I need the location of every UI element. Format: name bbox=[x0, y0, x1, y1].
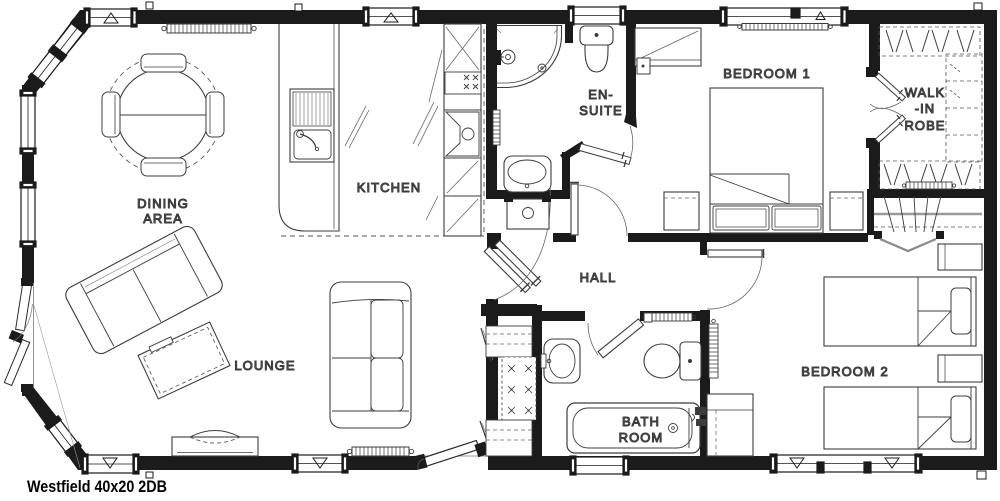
svg-text:HALL: HALL bbox=[580, 270, 617, 285]
svg-text:EN-: EN- bbox=[588, 87, 614, 102]
svg-text:DINING: DINING bbox=[137, 196, 189, 211]
svg-text:AREA: AREA bbox=[143, 211, 183, 226]
svg-text:BEDROOM 1: BEDROOM 1 bbox=[723, 66, 810, 81]
svg-text:ROOM: ROOM bbox=[619, 430, 664, 445]
svg-text:BEDROOM 2: BEDROOM 2 bbox=[801, 364, 888, 379]
svg-text:SUITE: SUITE bbox=[579, 103, 623, 118]
svg-text:ROBE: ROBE bbox=[904, 118, 945, 133]
svg-text:Westfield 40x20 2DB: Westfield 40x20 2DB bbox=[27, 478, 167, 496]
svg-text:WALK: WALK bbox=[905, 85, 946, 100]
svg-text:-IN: -IN bbox=[915, 101, 935, 116]
svg-text:LOUNGE: LOUNGE bbox=[234, 358, 295, 373]
svg-text:BATH: BATH bbox=[622, 414, 660, 429]
svg-text:KITCHEN: KITCHEN bbox=[357, 180, 421, 195]
